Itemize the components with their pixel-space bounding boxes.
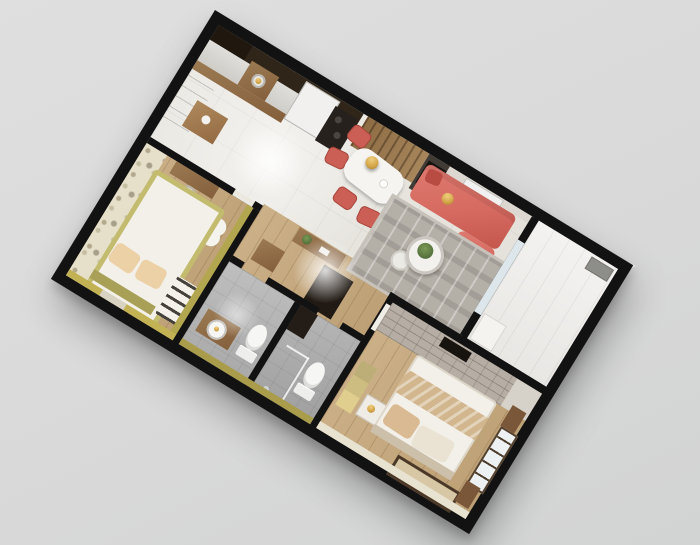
floor-plan-scene — [0, 0, 700, 545]
apartment-cutaway — [51, 10, 633, 534]
